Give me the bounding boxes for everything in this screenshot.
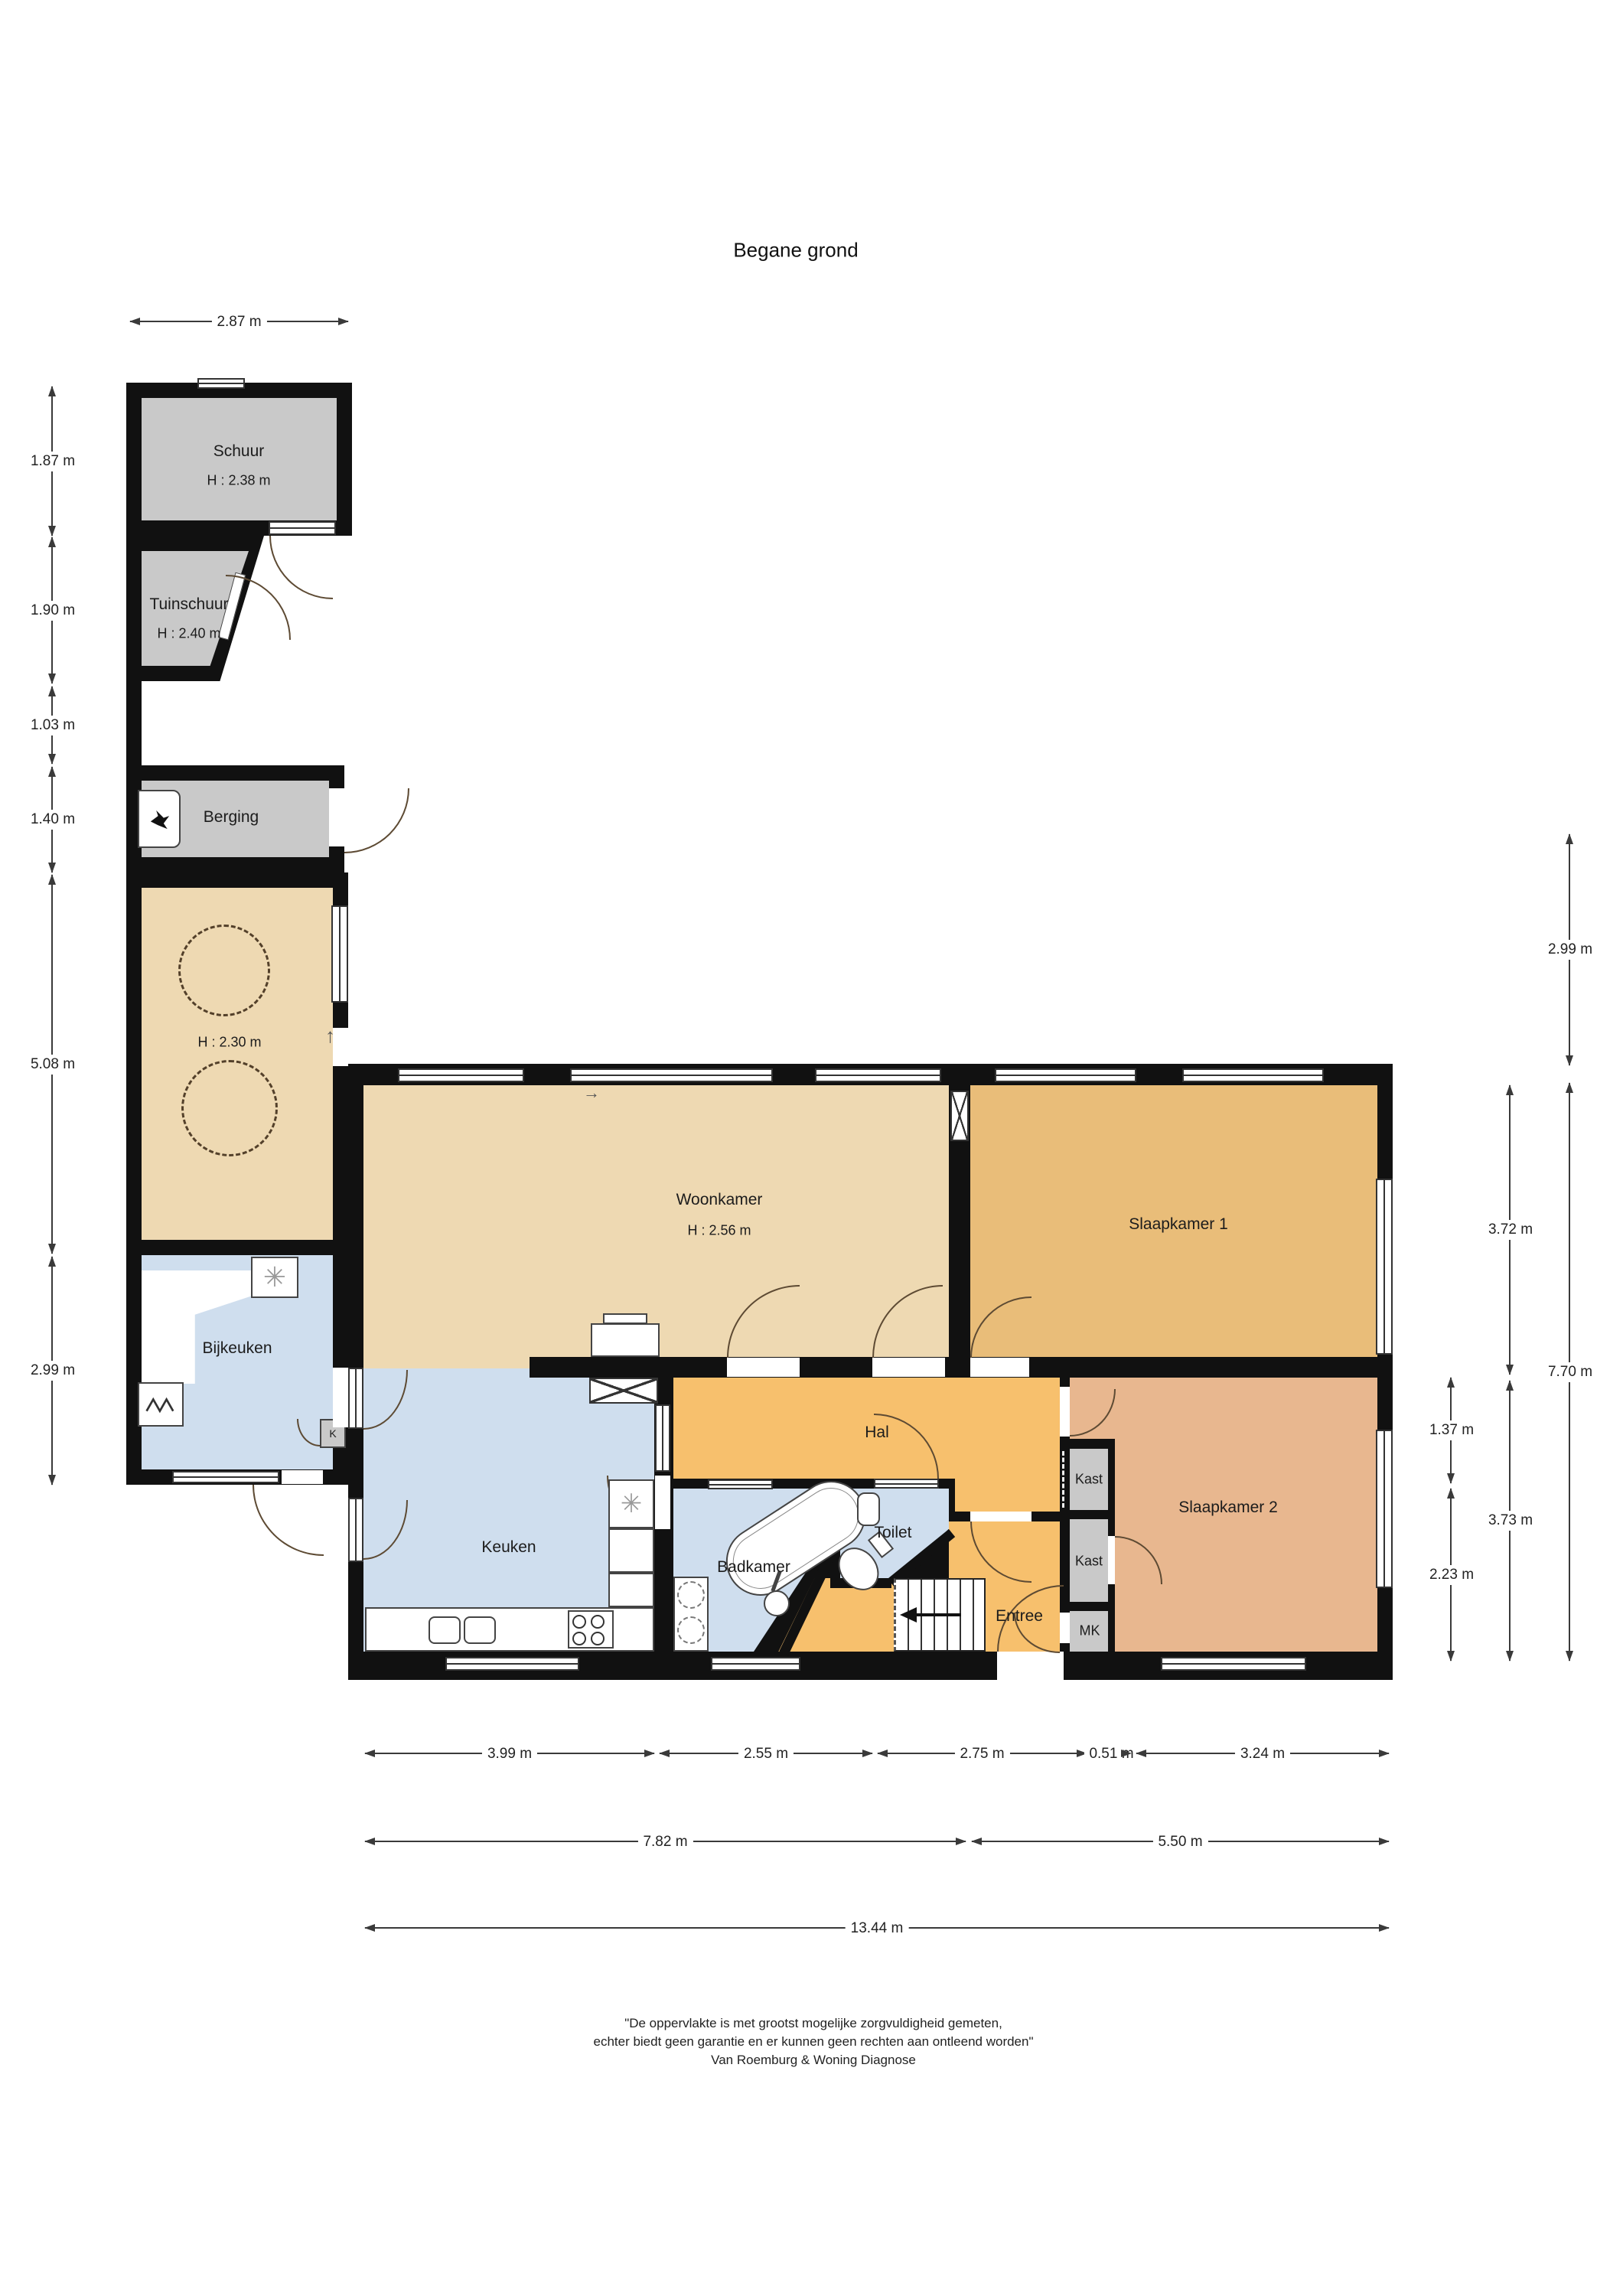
room-height-schuur: H : 2.38 m [207, 473, 270, 489]
window [331, 905, 348, 1003]
wall [126, 681, 142, 767]
burner-icon [572, 1615, 586, 1629]
window [1376, 1179, 1393, 1355]
dim-bottom1-3: 0.51 m [1092, 1753, 1131, 1754]
dim-left-2: 1.03 m [51, 687, 53, 764]
room-label-entree: Entree [996, 1607, 1043, 1626]
window [711, 1657, 800, 1671]
door-opening [348, 1498, 363, 1562]
window [445, 1657, 579, 1671]
window [1376, 1430, 1393, 1588]
fan-glyph: ✳ [621, 1489, 643, 1519]
dim-label: 3.73 m [1484, 1511, 1537, 1531]
stove-icon [603, 1313, 647, 1324]
closet-label-kast2: Kast [1075, 1554, 1103, 1570]
dim-right-inner-1: 2.23 m [1450, 1489, 1452, 1661]
room-label-keuken: Keuken [481, 1538, 536, 1557]
ventilation-icon: ✳ [251, 1257, 298, 1298]
dim-left-5: 2.99 m [51, 1257, 53, 1485]
room-height-garage: H : 2.30 m [197, 1035, 261, 1051]
closet-k-label: K [329, 1427, 336, 1440]
dim-label: 1.03 m [26, 716, 80, 735]
sliding-door [1062, 1451, 1069, 1508]
burner-icon [572, 1632, 586, 1645]
stove-icon [591, 1323, 660, 1357]
dim-right-middle-0: 3.72 m [1509, 1085, 1511, 1375]
dim-bottom2-1: 5.50 m [972, 1841, 1389, 1842]
door-opening [970, 1512, 1031, 1521]
front-door-opening [997, 1652, 1064, 1680]
window [1161, 1657, 1306, 1671]
dim-label: 1.40 m [26, 810, 80, 830]
dim-label: 2.55 m [738, 1745, 794, 1763]
door-opening [872, 1358, 945, 1377]
door-arc [269, 536, 333, 599]
window [398, 1068, 524, 1082]
dim-left-3: 1.40 m [51, 767, 53, 872]
window [995, 1068, 1136, 1082]
arrow-up-icon: ↑ [325, 1024, 335, 1048]
door-arc [344, 788, 409, 853]
window [197, 378, 245, 389]
arrow-right-icon: → [583, 1083, 600, 1103]
room-label-slaapkamer2: Slaapkamer 2 [1178, 1499, 1278, 1517]
ventilation-icon: ✳ [608, 1479, 654, 1528]
dim-left-0: 1.87 m [51, 386, 53, 536]
dim-left-4: 5.08 m [51, 875, 53, 1254]
dim-label: 1.37 m [1425, 1420, 1478, 1440]
round-object-icon [181, 1060, 278, 1156]
appliance-icon [608, 1528, 654, 1573]
room-label-toilet: Toilet [874, 1524, 911, 1542]
floor-plan: Begane grond Schuur H : 2.38 m Tuinschuu… [0, 0, 1623, 2296]
door-opening [727, 1358, 800, 1377]
room-height-tuinschuur: H : 2.40 m [157, 626, 220, 642]
room-label-bijkeuken: Bijkeuken [202, 1339, 272, 1358]
dim-top: 2.87 m [130, 321, 348, 322]
wall [1070, 1510, 1108, 1519]
hand-basin-icon [857, 1492, 880, 1526]
door-opening [655, 1476, 670, 1529]
dim-label: 1.90 m [26, 601, 80, 621]
stairs-arrow-line [915, 1613, 961, 1616]
room-hal [955, 1479, 1060, 1512]
door-arc [253, 1485, 324, 1556]
room-label-woonkamer: Woonkamer [676, 1191, 763, 1209]
dim-label: 3.99 m [482, 1745, 537, 1763]
burner-icon [591, 1615, 605, 1629]
dim-right-inner-0: 1.37 m [1450, 1378, 1452, 1483]
dim-label: 2.87 m [211, 313, 266, 331]
dim-label: 5.50 m [1152, 1833, 1207, 1851]
disclaimer-line3: Van Roemburg & Woning Diagnose [711, 2053, 916, 2068]
door-opening [970, 1358, 1029, 1377]
dim-bottom3-0: 13.44 m [365, 1927, 1389, 1929]
dim-bottom1-0: 3.99 m [365, 1753, 654, 1754]
room-label-hal: Hal [865, 1424, 889, 1442]
dim-label: 0.51 m [1084, 1745, 1139, 1763]
passage-opening [333, 1028, 348, 1066]
room-label-schuur: Schuur [213, 442, 265, 461]
sink-icon [464, 1616, 496, 1644]
dim-label: 3.72 m [1484, 1220, 1537, 1240]
disclaimer-line2: echter biedt geen garantie en er kunnen … [593, 2034, 1033, 2050]
shower-icon [764, 1590, 790, 1616]
dim-label: 7.70 m [1543, 1362, 1597, 1382]
freezer-icon [138, 1382, 184, 1427]
window [570, 1068, 773, 1082]
dim-right-outer-1: 7.70 m [1569, 1083, 1570, 1661]
wall [1070, 1602, 1108, 1611]
room-label-badkamer: Badkamer [717, 1558, 790, 1577]
dim-bottom2-0: 7.82 m [365, 1841, 966, 1842]
dim-left-1: 1.90 m [51, 537, 53, 683]
room-label-slaapkamer1: Slaapkamer 1 [1129, 1215, 1228, 1234]
dim-right-outer-0: 2.99 m [1569, 834, 1570, 1065]
room-woonkamer [363, 1357, 530, 1368]
dim-bottom1-4: 3.24 m [1136, 1753, 1389, 1754]
interior-window [708, 1479, 773, 1489]
door-opening [333, 1368, 348, 1427]
duct-icon [950, 1091, 969, 1141]
dim-bottom1-1: 2.55 m [660, 1753, 872, 1754]
door-opening [1060, 1387, 1070, 1437]
dim-bottom1-2: 2.75 m [878, 1753, 1087, 1754]
door-opening [1060, 1613, 1070, 1643]
cupboard-icon [589, 1378, 658, 1404]
room-label-berging: Berging [204, 808, 259, 827]
dim-label: 5.08 m [26, 1055, 80, 1075]
room-woonkamer [363, 1085, 949, 1357]
door-opening [329, 788, 344, 846]
stairs-arrow-icon [900, 1607, 917, 1623]
door-opening [874, 1479, 939, 1489]
room-height-woonkamer: H : 2.56 m [687, 1223, 751, 1239]
boiler-icon [138, 790, 181, 848]
disclaimer-line1: "De oppervlakte is met grootst mogelijke… [624, 2016, 1002, 2031]
burner-icon [591, 1632, 605, 1645]
door-opening [282, 1470, 323, 1484]
window [1182, 1068, 1324, 1082]
dim-label: 2.99 m [26, 1361, 80, 1381]
page-title: Begane grond [733, 239, 858, 263]
dim-label: 7.82 m [637, 1833, 693, 1851]
appliance-icon [608, 1573, 654, 1607]
dim-label: 2.75 m [954, 1745, 1009, 1763]
dim-label: 3.24 m [1235, 1745, 1290, 1763]
round-object-icon [178, 925, 270, 1016]
window [172, 1471, 279, 1483]
door-arc [226, 575, 291, 640]
room-label-tuinschuur: Tuinschuur [149, 595, 228, 614]
dim-right-middle-1: 3.73 m [1509, 1381, 1511, 1661]
window [815, 1068, 941, 1082]
fan-glyph: ✳ [263, 1261, 286, 1293]
closet-label-kast1: Kast [1075, 1472, 1103, 1488]
basin-icon [677, 1581, 705, 1609]
door-opening [1108, 1536, 1115, 1584]
dim-label: 2.23 m [1425, 1565, 1478, 1585]
basin-icon [677, 1616, 705, 1644]
interior-window [655, 1404, 670, 1472]
sink-icon [429, 1616, 461, 1644]
dim-label: 13.44 m [846, 1919, 909, 1938]
dim-label: 2.99 m [1543, 940, 1597, 960]
door-opening [269, 521, 336, 535]
wall [1060, 1439, 1115, 1449]
closet-label-mk: MK [1080, 1623, 1100, 1639]
dim-label: 1.87 m [26, 452, 80, 471]
door-opening [348, 1368, 363, 1429]
